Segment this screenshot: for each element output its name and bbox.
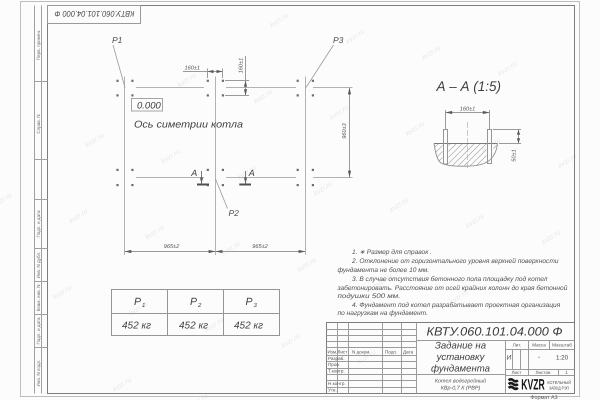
svg-text:Р: Р bbox=[246, 296, 253, 308]
svg-text:1:20: 1:20 bbox=[556, 355, 569, 362]
svg-text:Изм.Лист: Изм.Лист bbox=[328, 350, 349, 355]
svg-text:по нагрузкам на фундамент.: по нагрузкам на фундамент. bbox=[338, 310, 429, 317]
svg-text:Подп. и дата: Подп. и дата bbox=[36, 317, 41, 345]
svg-text:Н.контр.: Н.контр. bbox=[328, 381, 346, 386]
svg-text:452 кг: 452 кг bbox=[122, 321, 151, 332]
svg-text:фундамента: фундамента bbox=[431, 364, 490, 375]
svg-text:160±1: 160±1 bbox=[185, 66, 201, 72]
svg-text:Р: Р bbox=[134, 296, 141, 308]
svg-text:965±2: 965±2 bbox=[252, 244, 268, 250]
svg-text:Т.контр.: Т.контр. bbox=[328, 368, 345, 373]
svg-text:4. Фундамент под котел разраб: 4. Фундамент под котел разрабатывает про… bbox=[352, 302, 561, 309]
svg-text:960±3: 960±3 bbox=[342, 122, 348, 138]
svg-text:Подп.: Подп. bbox=[385, 350, 397, 355]
svg-text:160±1: 160±1 bbox=[460, 107, 476, 113]
svg-text:Инв. N подл.: Инв. N подл. bbox=[36, 359, 41, 386]
svg-text:А: А bbox=[248, 168, 255, 178]
svg-text:установку: установку bbox=[436, 352, 486, 363]
svg-text:Р3: Р3 bbox=[333, 35, 344, 45]
svg-text:1: 1 bbox=[142, 302, 145, 309]
svg-text:Лист: Лист bbox=[512, 370, 523, 375]
svg-text:забетонировать. Расстояние от: забетонировать. Расстояние от осей крайн… bbox=[337, 285, 568, 292]
svg-text:Разраб.: Разраб. bbox=[328, 356, 345, 361]
svg-text:фундамента не более 10 мм.: фундамента не более 10 мм. bbox=[338, 267, 430, 274]
svg-text:Дата: Дата bbox=[403, 350, 414, 355]
svg-text:КВТУ.060.101.04.000 Ф: КВТУ.060.101.04.000 Ф bbox=[54, 9, 134, 18]
svg-text:Перв. примен.: Перв. примен. bbox=[36, 30, 41, 61]
svg-text:Взам. инв. N: Взам. инв. N bbox=[36, 285, 41, 312]
svg-text:N докум.: N докум. bbox=[352, 350, 371, 355]
svg-text:Листов: Листов bbox=[536, 370, 551, 375]
svg-text:КВр-0,7 К (РВР): КВр-0,7 К (РВР) bbox=[441, 385, 481, 391]
svg-text:Лит.: Лит. bbox=[513, 342, 522, 347]
svg-text:1. ∗ Размер для справок .: 1. ∗ Размер для справок . bbox=[352, 249, 432, 256]
svg-text:2: 2 bbox=[197, 302, 202, 309]
svg-text:KVZR: KVZR bbox=[521, 377, 545, 394]
svg-text:ЗАВОД РЭП: ЗАВОД РЭП bbox=[549, 386, 569, 391]
svg-text:452 кг: 452 кг bbox=[179, 321, 208, 332]
svg-text:50±1: 50±1 bbox=[511, 149, 517, 161]
svg-text:Инв. N дубл.: Инв. N дубл. bbox=[36, 252, 41, 279]
svg-text:Утв.: Утв. bbox=[328, 387, 337, 392]
svg-text:Р: Р bbox=[190, 296, 197, 308]
svg-text:Формат А3: Формат А3 bbox=[530, 395, 557, 400]
svg-text:965±2: 965±2 bbox=[164, 244, 180, 250]
svg-text:Пров.: Пров. bbox=[328, 362, 340, 367]
svg-text:И: И bbox=[507, 355, 512, 362]
svg-text:Задание на: Задание на bbox=[435, 341, 486, 352]
svg-text:1: 1 bbox=[565, 370, 568, 375]
svg-text:Масса: Масса bbox=[532, 342, 546, 347]
svg-text:подушки 500 мм.: подушки 500 мм. bbox=[338, 293, 401, 300]
svg-text:0.000: 0.000 bbox=[137, 101, 161, 112]
svg-text:Р1: Р1 bbox=[112, 35, 123, 45]
svg-text:КВТУ.060.101.04.000 Ф: КВТУ.060.101.04.000 Ф bbox=[427, 325, 563, 339]
svg-text:452 кг: 452 кг bbox=[234, 321, 263, 332]
svg-text:2. Отклонение от горизонтальн: 2. Отклонение от горизонтального уровня … bbox=[351, 258, 559, 265]
svg-text:Подп. и дата: Подп. и дата bbox=[36, 210, 41, 238]
svg-text:Ось симетрии котла: Ось симетрии котла bbox=[134, 120, 244, 131]
svg-text:А – А (1:5): А – А (1:5) bbox=[436, 78, 501, 94]
svg-text:Котел водогрейный: Котел водогрейный bbox=[435, 379, 486, 385]
svg-text:А: А bbox=[190, 168, 197, 178]
svg-text:160±1: 160±1 bbox=[238, 58, 244, 74]
svg-text:Справ. N: Справ. N bbox=[36, 114, 41, 133]
svg-text:3. В случае отсутствия бетонн: 3. В случае отсутствия бетонного пола пл… bbox=[352, 276, 548, 283]
svg-text:Масштаб: Масштаб bbox=[552, 342, 572, 347]
svg-text:КОТЕЛЬНЫЙ: КОТЕЛЬНЫЙ bbox=[547, 380, 571, 385]
svg-text:Р2: Р2 bbox=[229, 208, 240, 218]
